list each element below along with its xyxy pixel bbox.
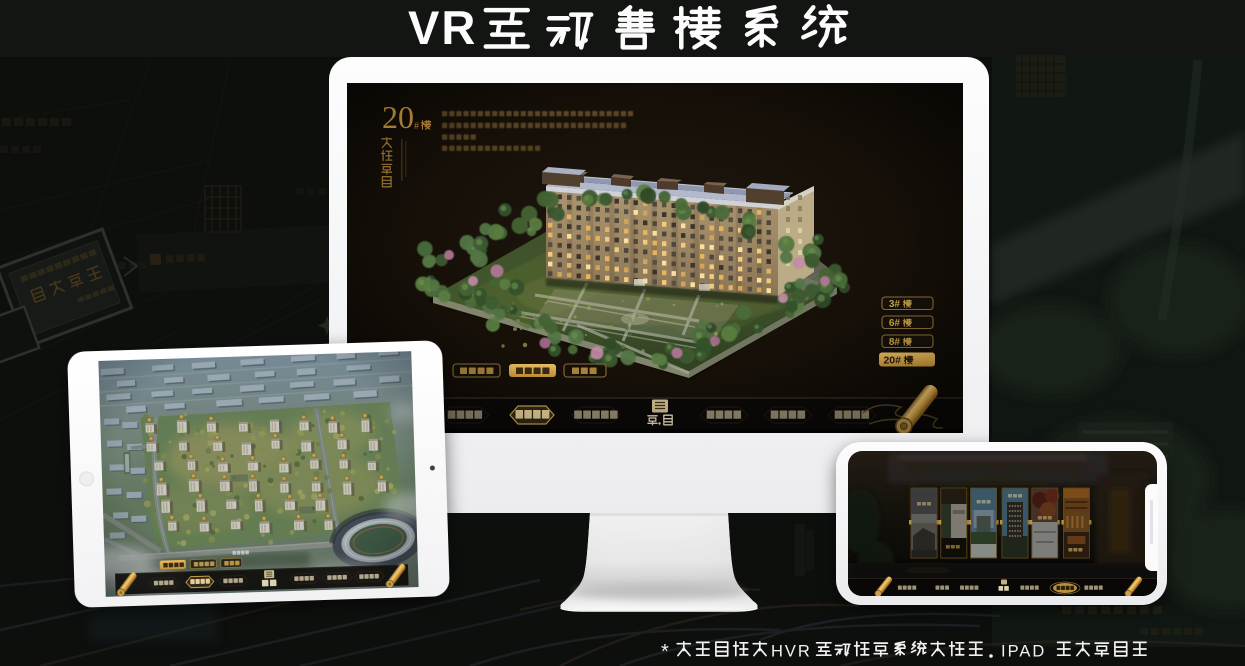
svg-text:HVR: HVR bbox=[771, 643, 812, 661]
svg-text:*: * bbox=[661, 641, 669, 663]
svg-text:IPAD: IPAD bbox=[1001, 643, 1046, 661]
svg-text:VR: VR bbox=[408, 1, 477, 54]
